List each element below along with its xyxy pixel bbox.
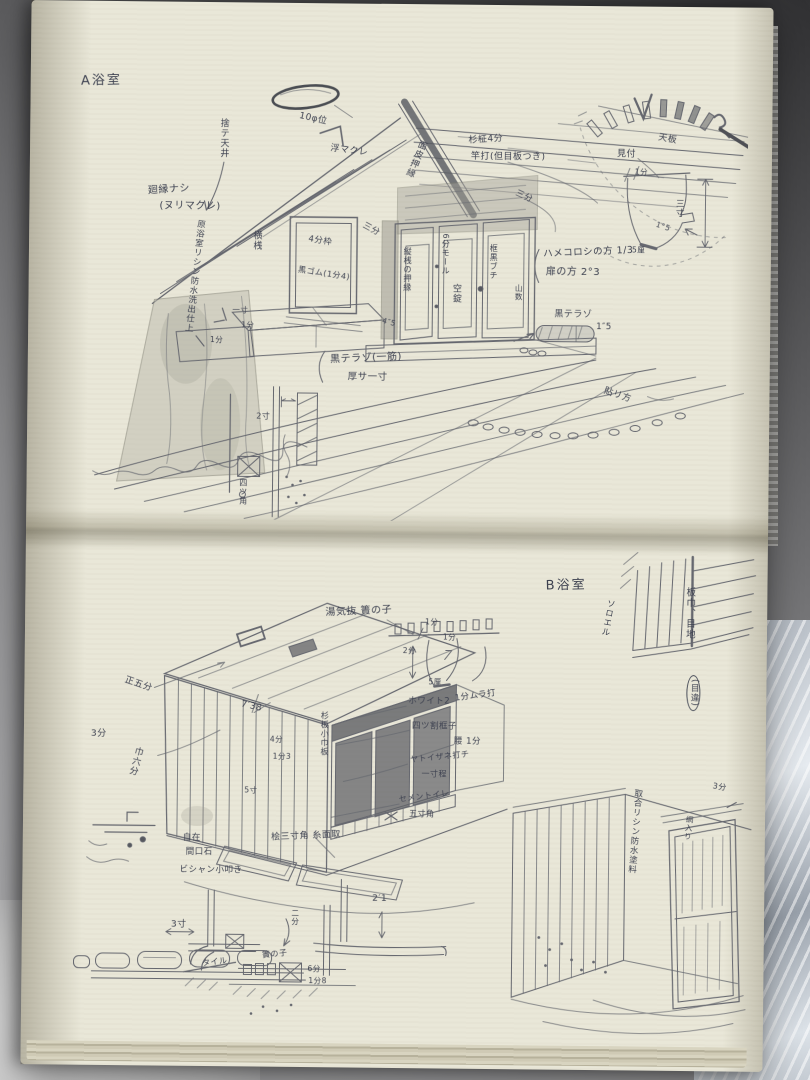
label-dim-nibu: 二分 bbox=[290, 909, 299, 926]
label-door-right: 框黒ブチ bbox=[489, 244, 499, 280]
label-funnel-top: 1分 bbox=[635, 168, 648, 177]
label-dim-3sun: 3寸 bbox=[171, 920, 187, 931]
label-dim-2-1: 2′1 bbox=[372, 894, 387, 905]
label-dim-1-3: 1分3 bbox=[273, 753, 292, 762]
label-terazo-side-dim: 1″5 bbox=[596, 323, 612, 333]
label-step-issun: 一寸 bbox=[232, 306, 248, 315]
label-yatoizane-2: 一寸程 bbox=[421, 769, 447, 778]
label-jizai-3: ビシャン小叩き bbox=[179, 866, 242, 876]
label-door-left: 縦桟の押縁 bbox=[403, 247, 413, 292]
photo-scene: A浴室 10φ位 浮マクレ 捨テ天井 廻縁ナシ (ヌリマクレ) 原浴室リシン防水… bbox=[0, 0, 810, 1080]
label-step-ichibu-b: 1分 bbox=[210, 336, 223, 345]
label-slat-bottom: 5厘 bbox=[428, 678, 441, 687]
label-jizai-1: 自在 bbox=[183, 834, 201, 844]
page-a-title: A浴室 bbox=[81, 74, 122, 90]
label-terazo-floor-2: 厚サ一寸 bbox=[348, 372, 388, 383]
label-door-right-sub: 山数 bbox=[513, 284, 522, 301]
label-yotsukado: 四ツ角 bbox=[238, 478, 247, 505]
label-dim-1-8: 1分8 bbox=[308, 977, 327, 986]
label-tobira: 扉の方 2°3 bbox=[546, 267, 601, 279]
label-koshi: 腰 1分 bbox=[454, 738, 481, 748]
label-ami-iri: 網入り bbox=[682, 815, 693, 841]
label-mechigai: (目違) bbox=[686, 675, 700, 711]
label-mitsuke: 見付 bbox=[617, 149, 636, 160]
label-terazo-side: 黒テラゾ bbox=[554, 310, 592, 321]
label-yokozan: 横桟 bbox=[251, 230, 262, 250]
label-dim-6bu: 6分 bbox=[307, 965, 320, 974]
page-b-drawing bbox=[33, 524, 761, 1067]
label-white-2: ホワイト2 bbox=[408, 697, 450, 707]
label-step-ichibu-a: 1分 bbox=[241, 321, 254, 330]
label-slat-left: 2分 bbox=[403, 647, 416, 656]
label-dim-4bu: 4分 bbox=[270, 736, 283, 745]
label-slat-right: 1分 bbox=[443, 633, 456, 642]
sketchbook: A浴室 10φ位 浮マクレ 捨テ天井 廻縁ナシ (ヌリマクレ) 原浴室リシン防水… bbox=[20, 0, 773, 1072]
page-b-bathroom-sketch: B浴室 ソロエル 板巾、目地 (目違) 湯気抜 簀の子 2分 1分 1分 5厘 … bbox=[33, 524, 761, 1067]
label-cement-2: 五寸角 bbox=[409, 809, 435, 818]
label-ceiling-1: 杉柾4分 bbox=[468, 134, 503, 146]
label-section-dim: 2寸 bbox=[256, 412, 270, 421]
label-sanbu: 3分 bbox=[91, 729, 107, 740]
label-sute-tenjo: 捨テ天井 bbox=[218, 118, 229, 158]
label-slat-top: 1分 bbox=[425, 618, 438, 627]
label-funnel-right: 三寸 bbox=[673, 199, 683, 218]
page-a-bathroom-sketch: A浴室 10φ位 浮マクレ 捨テ天井 廻縁ナシ (ヌリマクレ) 原浴室リシン防水… bbox=[34, 2, 749, 524]
label-dim-5sun: 5寸 bbox=[244, 786, 257, 795]
label-ceiling-2: 竿打(但目板つき) bbox=[471, 152, 546, 163]
page-b-title: B浴室 bbox=[546, 579, 587, 595]
label-mawaribuchi-2: (ヌリマクレ) bbox=[159, 200, 220, 212]
label-yotsuwari: 四ツ割框子 bbox=[412, 722, 457, 732]
label-funnel-bottom: 5厘 bbox=[632, 246, 645, 255]
label-door-mid-top: 6分モール bbox=[441, 233, 451, 275]
page-a-drawing bbox=[34, 2, 749, 524]
label-door-mid: 空錠 bbox=[450, 284, 461, 304]
label-sugi-ita: 杉板小巾板 bbox=[320, 711, 330, 756]
label-dim-3bu: 3分 bbox=[712, 781, 727, 792]
label-jizai-2: 間口石 bbox=[186, 848, 213, 858]
label-itahaba: 板巾、目地 bbox=[683, 587, 694, 640]
